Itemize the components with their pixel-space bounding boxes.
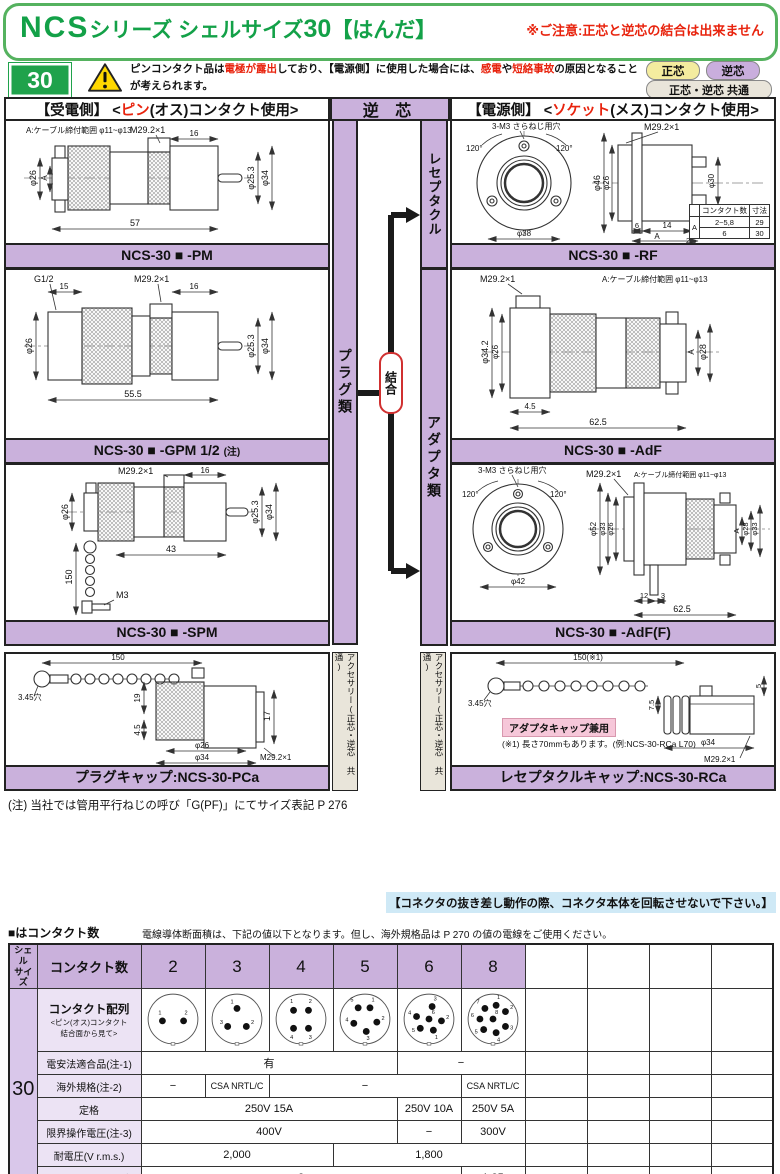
- dim-label: φ38: [517, 229, 532, 238]
- table-row: 海外規格(注-2) − CSA NRTL/C − CSA NRTL/C: [9, 1075, 773, 1098]
- section-header-power: 【電源側】 <ソケット(メス)コンタクト使用>: [450, 97, 776, 121]
- svg-text:3: 3: [510, 1025, 513, 1031]
- value-cell: 有: [141, 1052, 397, 1075]
- dim-label: A:ケーブル締付範囲 φ11~φ13: [602, 274, 708, 284]
- empty-cell: [525, 989, 587, 1052]
- table-row: 耐電圧(V r.m.s.) 2,000 1,800: [9, 1144, 773, 1167]
- dim-label: 120°: [550, 490, 567, 499]
- empty-cell: [711, 1052, 773, 1075]
- svg-text:8: 8: [495, 1010, 498, 1016]
- value-cell: CSA NRTL/C: [205, 1075, 269, 1098]
- row-label: 定格: [37, 1098, 141, 1121]
- dim-label: φ34: [260, 338, 270, 354]
- empty-cell: [649, 989, 711, 1052]
- inset-cell: 6: [700, 228, 750, 239]
- value-cell: 2,000: [141, 1144, 333, 1167]
- dim-label: 3.45穴: [468, 698, 492, 708]
- empty-cell: [587, 1121, 649, 1144]
- section-header-reverse: 逆 芯: [330, 97, 450, 121]
- contact-count: 4: [269, 944, 333, 989]
- dim-label: φ46: [592, 175, 602, 191]
- arrangement-label: コンタクト配列 <ピン(オス)コンタクト 結合面から見て>: [37, 989, 141, 1052]
- panel-pca: 150 3.45穴 19 4.5 φ26 φ34 17 M29.2×1 プ: [4, 652, 330, 791]
- panel-title-adff: NCS-30 ■ -AdF(F): [452, 620, 774, 644]
- svg-text:1: 1: [290, 999, 293, 1005]
- value-cell: −: [141, 1075, 205, 1098]
- dim-label: 150: [111, 654, 125, 662]
- dim-label: 62.5: [589, 417, 607, 427]
- empty-cell: [587, 1075, 649, 1098]
- table-row: 電安法適合品(注-1) 有 −: [9, 1052, 773, 1075]
- svg-text:5: 5: [412, 1028, 415, 1034]
- svg-text:4: 4: [408, 1010, 411, 1016]
- svg-text:7: 7: [477, 999, 480, 1005]
- dim-label: M29.2×1: [118, 466, 153, 476]
- dim-label: 120°: [556, 144, 573, 153]
- title-series: NCS: [20, 11, 89, 44]
- empty-cell: [587, 1098, 649, 1121]
- svg-text:4: 4: [290, 1035, 293, 1041]
- dim-label: 4.5: [524, 402, 536, 411]
- value-cell: CSA NRTL/C: [461, 1075, 525, 1098]
- empty-cell: [587, 1144, 649, 1167]
- dim-label: φ30: [707, 173, 716, 188]
- pin-arrangement-2: 12: [141, 989, 205, 1052]
- accessory-label-right: アクセサリー(正芯・逆芯 共通): [420, 652, 446, 791]
- dim-label: 15: [60, 282, 69, 291]
- dim-label: M29.2×1: [480, 274, 515, 284]
- dim-label: 120°: [466, 144, 483, 153]
- dim-label: M3: [116, 590, 129, 600]
- svg-text:1: 1: [230, 999, 233, 1005]
- table-row: 定格 250V 15A 250V 10A 250V 5A: [9, 1098, 773, 1121]
- value-cell: −: [397, 1052, 525, 1075]
- panel-title-rf: NCS-30 ■ -RF: [452, 243, 774, 267]
- svg-text:3: 3: [367, 1036, 370, 1042]
- row-label: 電線導体断面積(㎟): [37, 1167, 141, 1174]
- section-header-receiving: 【受電側】 <ピン(オス)コンタクト使用>: [4, 97, 330, 121]
- contact-count: 5: [333, 944, 397, 989]
- value-cell: 1,800: [333, 1144, 525, 1167]
- dim-label: A:ケーブル締付範囲 φ11~φ13: [26, 125, 132, 135]
- dim-label: φ34.2: [480, 340, 490, 363]
- value-cell: 2: [141, 1167, 461, 1174]
- svg-text:3: 3: [309, 1035, 312, 1041]
- dim-label: 3.45穴: [18, 692, 42, 702]
- dim-label: φ34: [195, 753, 210, 762]
- dim-label: φ25.3: [250, 500, 260, 523]
- mating-label: 結合: [379, 352, 403, 414]
- dim-label: M29.2×1: [130, 125, 165, 135]
- dim-label: M29.2×1: [260, 753, 292, 762]
- row-label: 電安法適合品(注-1): [37, 1052, 141, 1075]
- dim-label: 150: [64, 569, 74, 584]
- dim-label: φ28: [741, 522, 750, 535]
- dim-label: 16: [190, 129, 199, 138]
- panel-title-pm: NCS-30 ■ -PM: [6, 243, 328, 267]
- contact-count: 3: [205, 944, 269, 989]
- value-cell: 250V 10A: [397, 1098, 461, 1121]
- technical-drawing-spm: M29.2×1 16 φ26 φ25.3 φ34 43 M3 150: [6, 465, 328, 622]
- contact-count: 2: [141, 944, 205, 989]
- technical-drawing-adff: 3-M3 さらねじ用穴 120° 120° φ42 M29.2×1 A:ケーブル…: [452, 465, 774, 622]
- dim-label: 4.5: [133, 724, 142, 736]
- dim-label: φ42: [511, 577, 526, 586]
- dim-label: A: [687, 349, 696, 355]
- empty-cell: [525, 1167, 587, 1174]
- rca-length-note: (※1) 長さ70mmもあります。(例:NCS-30-RCa L70): [502, 738, 696, 750]
- inset-corner: [689, 205, 699, 217]
- svg-text:3: 3: [434, 996, 437, 1002]
- page-title: NCSシリーズ シェルサイズ30【はんだ】: [20, 11, 436, 45]
- svg-text:2: 2: [309, 999, 312, 1005]
- dim-label: 16: [190, 282, 199, 291]
- pin-arrangement-6: 364251: [397, 989, 461, 1052]
- empty-cell: [525, 1121, 587, 1144]
- svg-text:4: 4: [497, 1037, 500, 1043]
- svg-text:4: 4: [345, 1017, 348, 1023]
- dim-label: φ25.3: [246, 166, 256, 189]
- tag-reverse-polarity: 逆芯: [706, 61, 760, 80]
- empty-cell: [525, 944, 587, 989]
- dim-label: φ34: [264, 504, 274, 520]
- dim-label: 3: [661, 591, 665, 600]
- inset-row-key: A: [689, 217, 699, 239]
- empty-cell: [711, 1075, 773, 1098]
- svg-text:5: 5: [475, 1029, 478, 1035]
- dim-label: 12: [640, 591, 648, 600]
- warning-icon: [88, 62, 122, 93]
- panel-rca: 150(※1) 3.45穴 7.5 φ34 5 M29.2×1 アダプタキャップ…: [450, 652, 776, 791]
- group-label-receptacle: レセプタクル: [420, 119, 448, 269]
- panel-title-rca: レセプタクルキャップ:NCS-30-RCa: [452, 765, 774, 789]
- dim-label: M29.2×1: [134, 274, 169, 284]
- empty-cell: [525, 1052, 587, 1075]
- empty-cell: [711, 1098, 773, 1121]
- dim-label: A:ケーブル締付範囲 φ11~φ13: [634, 470, 726, 479]
- empty-cell: [649, 1121, 711, 1144]
- dim-label: φ26: [28, 170, 38, 186]
- dim-label: 7.5: [647, 700, 656, 710]
- arrangement-row: 30 コンタクト配列 <ピン(オス)コンタクト 結合面から見て> 12 123 …: [9, 989, 773, 1052]
- table-row: 電線導体断面積(㎟) 2 1.25: [9, 1167, 773, 1174]
- empty-cell: [711, 1167, 773, 1174]
- empty-cell: [525, 1075, 587, 1098]
- contact-count: 6: [397, 944, 461, 989]
- panel-adff: 3-M3 さらねじ用穴 120° 120° φ42 M29.2×1 A:ケーブル…: [450, 463, 776, 646]
- empty-cell: [649, 1098, 711, 1121]
- dim-label: 16: [201, 466, 210, 475]
- inset-cell: 30: [750, 228, 770, 239]
- svg-text:6: 6: [471, 1013, 474, 1019]
- svg-text:2: 2: [381, 1016, 384, 1022]
- svg-text:2: 2: [446, 1015, 449, 1021]
- dim-label: φ26: [60, 504, 70, 520]
- dim-label: 3-M3 さらねじ用穴: [478, 465, 546, 475]
- svg-text:1: 1: [435, 1035, 438, 1041]
- dim-label: φ33: [750, 522, 759, 535]
- value-cell: 400V: [141, 1121, 397, 1144]
- technical-drawing-rca: 150(※1) 3.45穴 7.5 φ34 5 M29.2×1: [452, 654, 774, 767]
- empty-cell: [587, 1167, 649, 1174]
- inset-cell: 29: [750, 217, 770, 228]
- dim-label: φ26: [195, 741, 210, 750]
- dim-label: 19: [133, 693, 142, 702]
- empty-cell: [649, 1144, 711, 1167]
- empty-cell: [587, 944, 649, 989]
- row-label: 耐電圧(V r.m.s.): [37, 1144, 141, 1167]
- technical-drawing-pca: 150 3.45穴 19 4.5 φ26 φ34 17 M29.2×1: [6, 654, 328, 767]
- panel-rf: 3-M3 さらねじ用穴 120° 120° φ38 M29.2×1 φ46 φ2…: [450, 119, 776, 269]
- caution-note: ※ご注意:正芯と逆芯の結合は出来ません: [526, 20, 764, 39]
- panel-spm: M29.2×1 16 φ26 φ25.3 φ34 43 M3 150 NCS-3…: [4, 463, 330, 646]
- empty-cell: [711, 1121, 773, 1144]
- rotation-warning-note: 【コネクタの抜き差し動作の際、コネクタ本体を回転させないで下さい。】: [386, 892, 776, 913]
- dim-label: 5: [754, 684, 763, 688]
- empty-cell: [525, 1144, 587, 1167]
- empty-cell: [649, 944, 711, 989]
- value-cell: 300V: [461, 1121, 525, 1144]
- value-cell: −: [269, 1075, 461, 1098]
- panel-title-adf: NCS-30 ■ -AdF: [452, 438, 774, 462]
- technical-drawing-adf: M29.2×1 A:ケーブル締付範囲 φ11~φ13 φ34.2 φ26 A φ…: [452, 270, 774, 440]
- dim-label: 62.5: [673, 604, 691, 614]
- dim-label: φ26: [602, 175, 611, 190]
- shell-size-value: 30: [9, 989, 37, 1174]
- dim-label: 150(※1): [573, 654, 603, 662]
- value-cell: 250V 5A: [461, 1098, 525, 1121]
- pin-arrangement-4: 1234: [269, 989, 333, 1052]
- dim-label: φ26: [491, 344, 500, 359]
- svg-text:2: 2: [251, 1020, 254, 1026]
- table-row: 限界操作電圧(注-3) 400V − 300V: [9, 1121, 773, 1144]
- inset-cell: 2~5,8: [700, 217, 750, 228]
- adapter-cap-badge: アダプタキャップ兼用: [502, 718, 616, 737]
- svg-text:1: 1: [497, 995, 500, 1001]
- value-cell: −: [397, 1121, 461, 1144]
- inset-header: コンタクト数: [700, 205, 750, 217]
- svg-text:3: 3: [220, 1020, 223, 1026]
- value-cell: 1.25: [461, 1167, 525, 1174]
- empty-cell: [711, 989, 773, 1052]
- empty-cell: [711, 1144, 773, 1167]
- empty-cell: [649, 1167, 711, 1174]
- table-intro-right: 電線導体断面積は、下記の値以下となります。但し、海外規格品は P 270 の値の…: [142, 926, 612, 941]
- svg-text:2: 2: [185, 1010, 188, 1016]
- dim-label: 43: [166, 544, 176, 554]
- empty-cell: [587, 1052, 649, 1075]
- inset-header: 寸法: [750, 205, 770, 217]
- spec-table: シェルサイズ コンタクト数 2 3 4 5 6 8 30 コンタクト配列 <ピン…: [8, 943, 774, 1174]
- empty-cell: [649, 1075, 711, 1098]
- dim-label: A: [732, 528, 741, 533]
- dim-label: M29.2×1: [644, 122, 679, 132]
- pin-arrangement-5: 12345: [333, 989, 397, 1052]
- svg-text:2: 2: [510, 1005, 513, 1011]
- technical-drawing-gpm: G1/2 15 M29.2×1 16 φ26 φ25.3 φ34 55.5: [6, 270, 328, 440]
- panel-pm: A:ケーブル締付範囲 φ11~φ13 M29.2×1 16 φ26 A φ25.…: [4, 119, 330, 269]
- contact-count: 8: [461, 944, 525, 989]
- dim-label: φ34: [260, 170, 270, 186]
- empty-cell: [587, 989, 649, 1052]
- rf-dimension-table: コンタクト数寸法 A2~5,829 630: [689, 204, 770, 239]
- contact-count-label: コンタクト数: [37, 944, 141, 989]
- accessory-label-left: アクセサリー(正芯・逆芯 共通): [332, 652, 358, 791]
- dim-label: M29.2×1: [586, 469, 621, 479]
- dim-label: 17: [262, 711, 272, 721]
- dim-label: 14: [663, 221, 672, 230]
- dim-label: φ26: [606, 522, 615, 535]
- empty-cell: [649, 1052, 711, 1075]
- dim-label: φ26: [24, 338, 34, 354]
- dim-label: 55.5: [124, 389, 142, 399]
- tag-normal-polarity: 正芯: [646, 61, 700, 80]
- empty-cell: [525, 1098, 587, 1121]
- dim-label: M29.2×1: [704, 755, 736, 764]
- row-label: 限界操作電圧(注-3): [37, 1121, 141, 1144]
- technical-drawing-pm: A:ケーブル締付範囲 φ11~φ13 M29.2×1 16 φ26 A φ25.…: [6, 121, 328, 245]
- dim-label: φ34: [701, 738, 716, 747]
- group-label-plugs: プラグ類: [332, 119, 358, 645]
- shell-size-badge: 30: [8, 62, 72, 98]
- row-label: 海外規格(注-2): [37, 1075, 141, 1098]
- catalog-page: NCSシリーズ シェルサイズ30【はんだ】 ※ご注意:正芯と逆芯の結合は出来ませ…: [0, 0, 780, 1174]
- panel-title-pca: プラグキャップ:NCS-30-PCa: [6, 765, 328, 789]
- dim-label: φ52: [589, 521, 598, 536]
- value-cell: 250V 15A: [141, 1098, 397, 1121]
- svg-text:6: 6: [432, 1010, 435, 1016]
- svg-text:1: 1: [372, 997, 375, 1003]
- dim-label: φ25.3: [246, 334, 256, 357]
- dim-label: A: [40, 175, 49, 181]
- panel-title-spm: NCS-30 ■ -SPM: [6, 620, 328, 644]
- dim-label: φ28: [698, 344, 708, 360]
- dim-label: 120°: [462, 490, 479, 499]
- dim-label: 6: [635, 221, 639, 230]
- dim-label: A: [654, 232, 660, 241]
- panel-gpm: G1/2 15 M29.2×1 16 φ26 φ25.3 φ34 55.5 NC…: [4, 268, 330, 464]
- g-thread-footnote: (注) 当社では管用平行ねじの呼び「G(PF)」にてサイズ表記 P 276: [8, 797, 347, 813]
- svg-text:1: 1: [158, 1010, 161, 1016]
- panel-adf: M29.2×1 A:ケーブル締付範囲 φ11~φ13 φ34.2 φ26 A φ…: [450, 268, 776, 464]
- group-label-adapters: アダプタ類: [420, 268, 448, 646]
- svg-text:5: 5: [350, 997, 353, 1003]
- shell-size-header: シェルサイズ: [9, 944, 37, 989]
- pin-arrangement-8: 12345678: [461, 989, 525, 1052]
- table-header-row: シェルサイズ コンタクト数 2 3 4 5 6 8: [9, 944, 773, 989]
- dim-label: G1/2: [34, 274, 54, 284]
- dim-label: 3-M3 さらねじ用穴: [492, 121, 560, 131]
- dim-label: 57: [130, 218, 140, 228]
- pin-arrangement-3: 123: [205, 989, 269, 1052]
- empty-cell: [711, 944, 773, 989]
- panel-title-gpm: NCS-30 ■ -GPM 1/2 (注): [6, 438, 328, 462]
- table-intro-left: ■はコンタクト数: [8, 924, 99, 941]
